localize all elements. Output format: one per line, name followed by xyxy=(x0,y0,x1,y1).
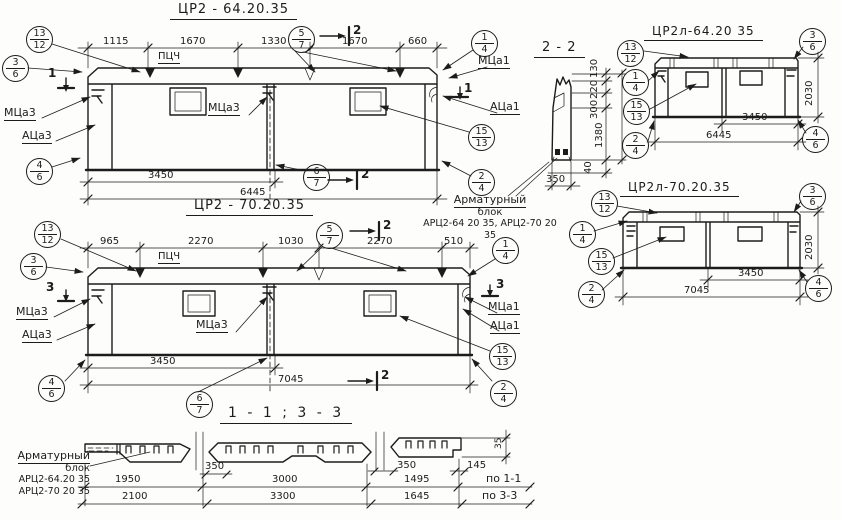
dim-label: 660 xyxy=(408,36,427,47)
position-balloon: 1312 xyxy=(26,26,53,53)
position-balloon: 1312 xyxy=(591,190,618,217)
position-balloon: 46 xyxy=(26,158,53,185)
position-balloon: 1312 xyxy=(617,40,644,67)
mca3-label: МЦа3 xyxy=(16,306,48,320)
mca3-label: МЦа3 xyxy=(208,102,240,116)
position-balloon: 14 xyxy=(622,69,649,96)
dim-label: 2270 xyxy=(367,236,392,247)
cut2-digit: 2 xyxy=(381,369,389,382)
dim-label: 1670 xyxy=(180,36,205,47)
dim-label: 1645 xyxy=(404,491,429,502)
note-line: блок xyxy=(478,207,503,218)
cut2-digit: 2 xyxy=(361,168,369,181)
dim-label: 6445 xyxy=(240,187,265,198)
rebar-block-note: Арматурный блок АРЦ2-64 20 35, АРЦ2-70 2… xyxy=(420,194,560,242)
aca3-label: АЦа3 xyxy=(22,329,52,343)
note-line: АРЦ2-70 20 35 xyxy=(19,486,90,497)
dim-label: 7045 xyxy=(278,374,303,385)
dim-label: 145 xyxy=(467,460,486,471)
cut2-digit: 2 xyxy=(383,219,391,232)
dim-label: 350 xyxy=(397,460,416,471)
panel1-title: ЦР2 - 64.20.35 xyxy=(170,3,297,20)
position-balloon: 36 xyxy=(20,253,47,280)
mca3-label: МЦа3 xyxy=(196,319,228,333)
note-line: АРЦ2-64.20 35 xyxy=(19,474,90,485)
note-line: блок xyxy=(65,463,90,474)
position-balloon: 46 xyxy=(38,375,65,402)
right1-title: ЦР2л-64.20 35 xyxy=(644,25,763,41)
dim-label: 3300 xyxy=(270,491,295,502)
mca3-label: МЦа3 xyxy=(4,107,36,121)
position-balloon: 1513 xyxy=(588,248,615,275)
position-balloon: 67 xyxy=(186,391,213,418)
position-balloon: 24 xyxy=(578,281,605,308)
position-balloon: 1513 xyxy=(623,98,650,125)
dim-label: 2030 xyxy=(804,226,815,260)
position-balloon: 14 xyxy=(492,237,519,264)
cut1-digit: 1 xyxy=(464,82,472,95)
note-line: АРЦ2-64 20 35, АРЦ2-70 20 35 xyxy=(423,218,557,241)
position-balloon: 36 xyxy=(2,55,29,82)
position-balloon: 36 xyxy=(799,28,826,55)
dim-label: 6445 xyxy=(706,130,731,141)
dim-label: 2270 xyxy=(188,236,213,247)
position-balloon: 14 xyxy=(569,221,596,248)
cut1-digit: 1 xyxy=(48,67,56,80)
position-balloon: 24 xyxy=(622,132,649,159)
position-balloon: 46 xyxy=(805,275,832,302)
position-balloon: 36 xyxy=(799,183,826,210)
cut3-digit: 3 xyxy=(46,281,54,294)
drawing-sheet: ЦР2 - 64.20.35 ЦР2 - 70.20.35 2 - 2 ЦР2л… xyxy=(0,0,841,520)
position-balloon: 1312 xyxy=(34,221,61,248)
dim-label: 965 xyxy=(100,236,119,247)
panel2-title: ЦР2 - 70.20.35 xyxy=(186,199,313,216)
dim-label: 2100 xyxy=(122,491,147,502)
right2-title: ЦР2л-70.20.35 xyxy=(620,181,739,197)
dim-label: 130 xyxy=(589,58,600,78)
dim-label: 350 xyxy=(546,174,565,185)
section22-title: 2 - 2 xyxy=(534,41,585,58)
mca1-label: МЦа1 xyxy=(478,55,510,69)
dim-label: 3450 xyxy=(742,112,767,123)
aca1-label: АЦа1 xyxy=(490,101,520,115)
bottom-title: 1 - 1 ; 3 - 3 xyxy=(220,406,352,424)
dim-label: 35 xyxy=(495,433,505,449)
mca1-label: МЦа1 xyxy=(488,301,520,315)
position-balloon: 24 xyxy=(490,380,517,407)
dim-label: 350 xyxy=(205,461,224,472)
row-label: по 1-1 xyxy=(486,473,521,485)
position-balloon: 14 xyxy=(471,30,498,57)
row-label: по 3-3 xyxy=(482,490,517,502)
dim-label: 3450 xyxy=(148,170,173,181)
position-balloon: 57 xyxy=(288,26,315,53)
position-balloon: 67 xyxy=(303,164,330,191)
dim-label: 3000 xyxy=(272,474,297,485)
dim-label: 1030 xyxy=(278,236,303,247)
dim-label: 220 xyxy=(589,79,600,99)
dim-label: 1670 xyxy=(342,36,367,47)
position-balloon: 57 xyxy=(316,222,343,249)
position-balloon: 1513 xyxy=(489,343,516,370)
position-balloon: 1513 xyxy=(468,124,495,151)
dim-label: 7045 xyxy=(684,285,709,296)
dim-label: 1380 xyxy=(594,114,605,148)
dim-label: 40 xyxy=(583,158,594,174)
position-balloon: 24 xyxy=(468,169,495,196)
aca1-label: АЦа1 xyxy=(490,320,520,334)
dim-label: 1115 xyxy=(103,36,128,47)
rebar-block-note: Арматурный блок АРЦ2-64.20 35 АРЦ2-70 20… xyxy=(2,450,90,498)
dim-label: 1950 xyxy=(115,474,140,485)
dim-label: 1495 xyxy=(404,474,429,485)
drawing-linework xyxy=(0,0,841,520)
position-balloon: 46 xyxy=(802,126,829,153)
cut2-digit: 2 xyxy=(353,24,361,37)
dim-label: 2030 xyxy=(804,72,815,106)
dim-label: 3450 xyxy=(150,356,175,367)
cut3-digit: 3 xyxy=(496,278,504,291)
aca3-label: АЦа3 xyxy=(22,130,52,144)
pcch-label: ПЦЧ xyxy=(158,51,180,64)
pcch-label: ПЦЧ xyxy=(158,251,180,264)
dim-label: 1330 xyxy=(261,36,286,47)
dim-label: 3450 xyxy=(738,268,763,279)
